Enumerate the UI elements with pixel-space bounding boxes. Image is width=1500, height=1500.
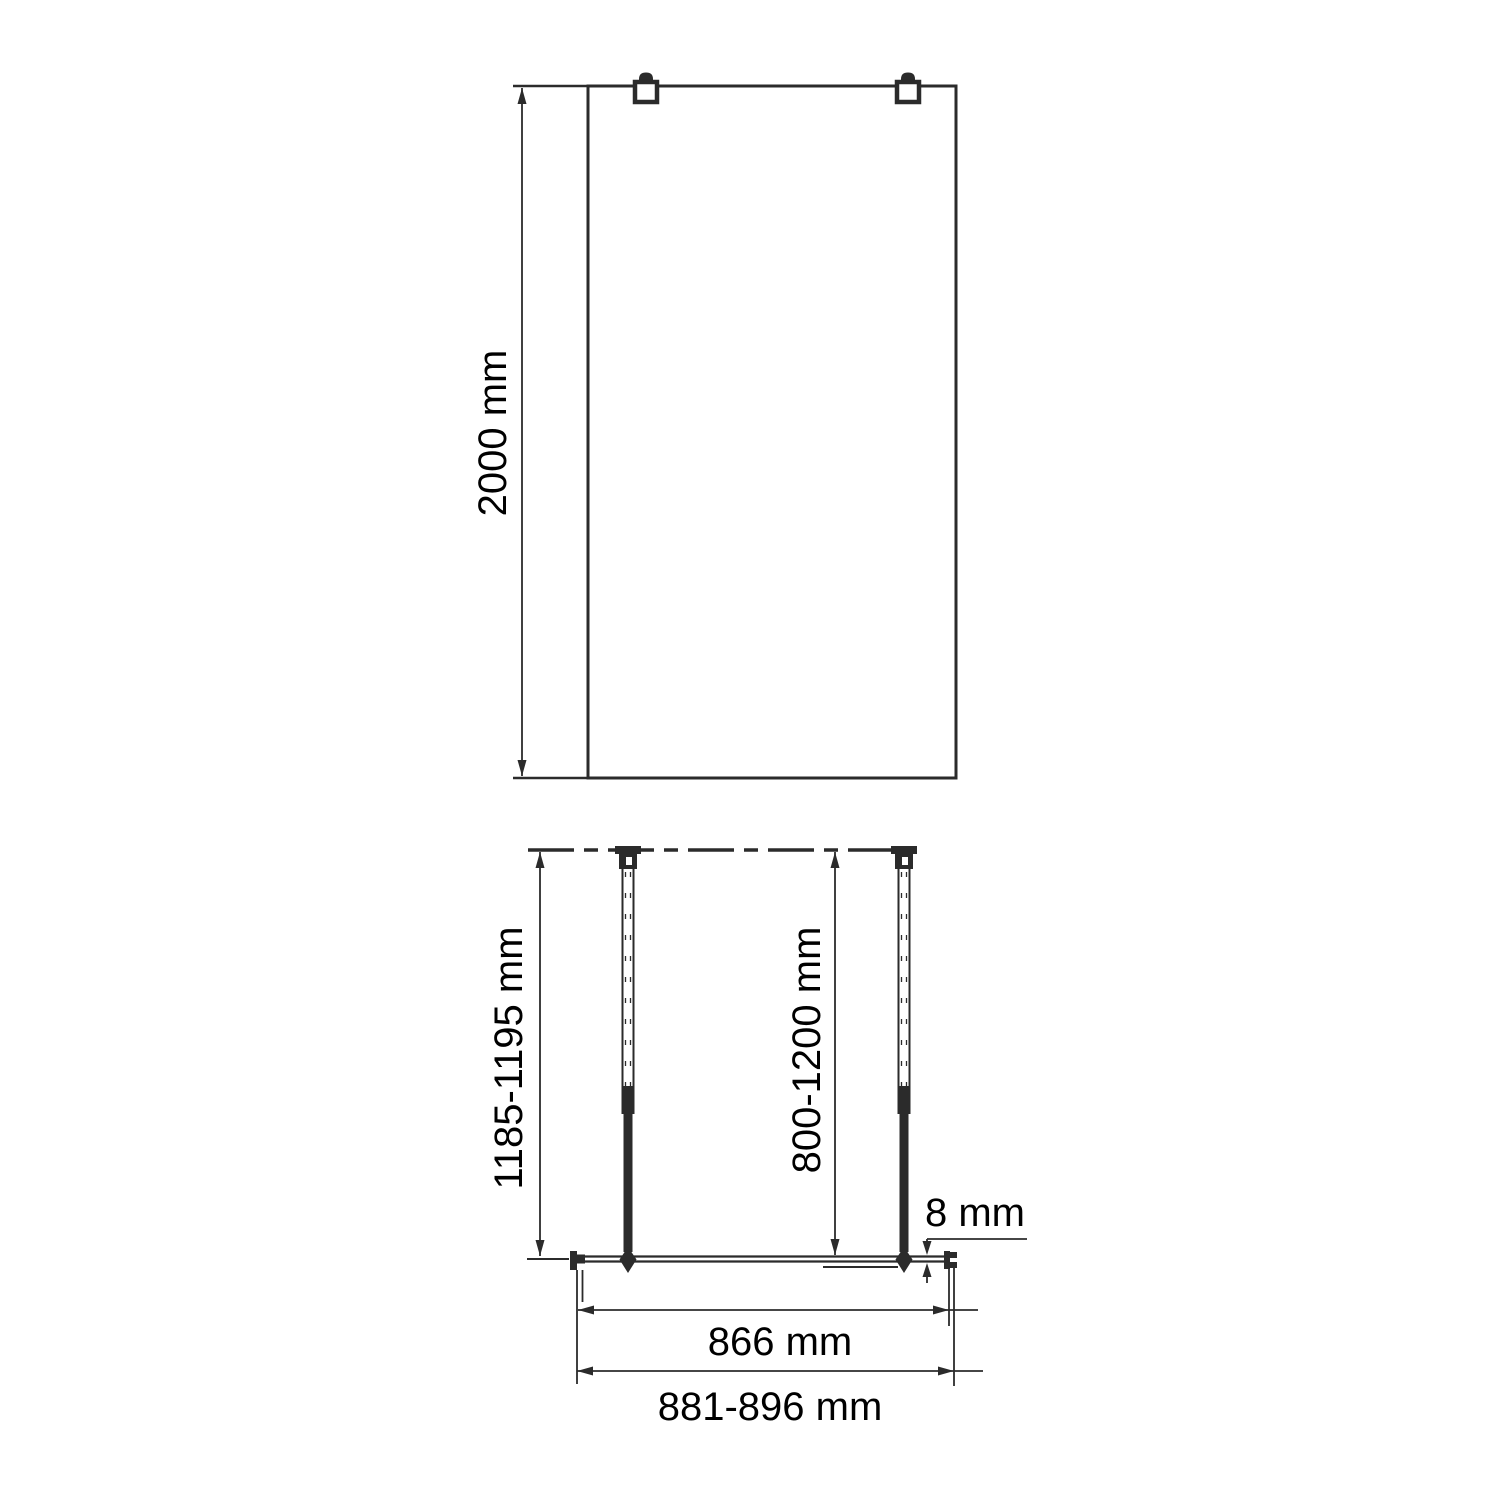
bracket-slot <box>626 857 632 865</box>
glass-holder-left <box>635 73 657 103</box>
arrow-right-icon <box>938 1367 954 1376</box>
glass-holder-right <box>897 73 919 103</box>
arrow-down-icon <box>923 1241 932 1255</box>
holder-body <box>635 82 657 102</box>
arrow-down-icon <box>831 1239 840 1255</box>
arrow-down-icon <box>518 760 527 776</box>
thickness-callout: 8 mm <box>923 1191 1028 1283</box>
plan-view: 1185-1195 mm 800-1200 mm 8 mm 866 mm <box>487 846 1027 1429</box>
wall-flange <box>891 846 917 854</box>
bar-rod <box>900 1112 909 1252</box>
technical-drawing-canvas: 2000 mm <box>0 0 1500 1500</box>
wall-flange <box>615 846 641 854</box>
dimension-label-bar: 800-1200 mm <box>785 927 829 1174</box>
arrow-right-icon <box>933 1306 949 1315</box>
shower-screen-drawing: 2000 mm <box>0 0 1500 1500</box>
locking-collar <box>622 1086 635 1114</box>
dimension-label-overall-width: 881-896 mm <box>658 1385 883 1429</box>
front-view: 2000 mm <box>471 73 956 779</box>
support-bar-left <box>615 846 641 1273</box>
arrow-left-icon <box>577 1367 593 1376</box>
wall-profile-cap-right <box>944 1251 957 1269</box>
glass-end-cap-left <box>570 1251 585 1270</box>
dimension-label-height: 2000 mm <box>471 350 515 517</box>
locking-collar <box>898 1086 911 1114</box>
arrow-up-icon <box>923 1263 932 1277</box>
bracket-slot <box>902 857 908 865</box>
arrow-up-icon <box>518 88 527 104</box>
glass-clamp-icon <box>620 1247 637 1273</box>
dimension-label-thickness: 8 mm <box>925 1191 1025 1235</box>
bar-rod <box>624 1112 633 1252</box>
arrow-down-icon <box>536 1240 545 1256</box>
dimension-label-depth: 1185-1195 mm <box>487 926 531 1189</box>
glass-clamp-icon <box>896 1247 913 1273</box>
arrow-up-icon <box>536 852 545 868</box>
width-dimensions: 866 mm 881-896 mm <box>577 1268 983 1429</box>
glass-panel-front <box>588 86 956 778</box>
holder-body <box>897 82 919 102</box>
dimension-label-glass-width: 866 mm <box>708 1320 853 1364</box>
arrow-up-icon <box>831 852 840 868</box>
support-bar-right <box>891 846 917 1273</box>
arrow-left-icon <box>578 1306 594 1315</box>
